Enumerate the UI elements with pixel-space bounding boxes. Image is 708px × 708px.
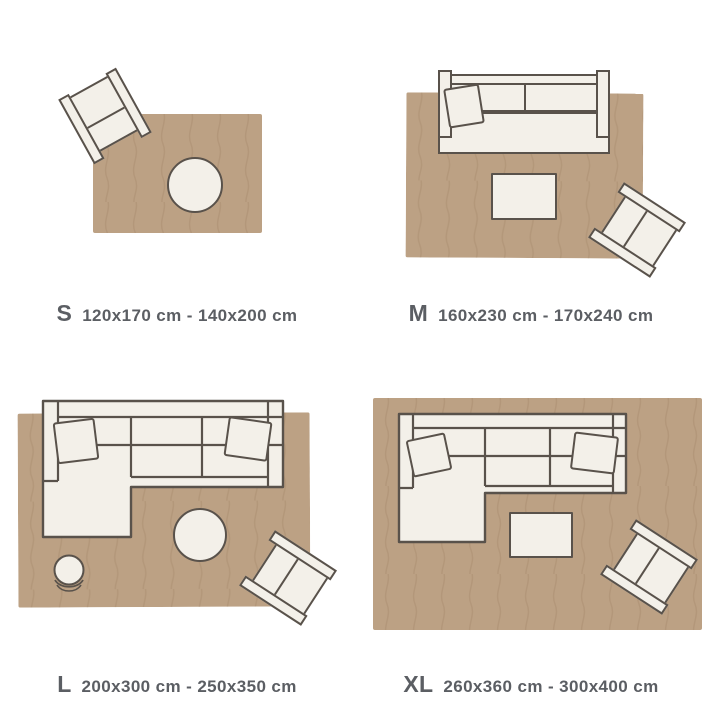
size-label-l: L [57, 671, 71, 698]
size-range-l: 200x300 cm - 250x350 cm [82, 677, 297, 697]
armchair-seat-divider [621, 208, 649, 249]
size-range-s: 120x170 cm - 140x200 cm [82, 306, 297, 326]
armchair-seat-divider [85, 105, 128, 130]
sofa-illustration-m [438, 70, 610, 154]
size-range-m: 160x230 cm - 170x240 cm [438, 306, 653, 326]
size-range-xl: 260x360 cm - 300x400 cm [443, 677, 658, 697]
pillow-illustration [53, 418, 100, 465]
size-label-xl: XL [403, 671, 433, 698]
coffee-table-illustration-m [491, 173, 557, 220]
size-label-s: S [57, 300, 73, 327]
round-table-illustration-s [167, 157, 223, 213]
pillow-illustration [570, 431, 619, 474]
sectional-sofa-illustration-xl [397, 412, 628, 544]
pouf-illustration-l [50, 553, 88, 597]
rug-size-guide: S 120x170 cm - 140x200 cm [0, 0, 708, 708]
size-label-m: M [409, 300, 428, 327]
pillow-illustration [405, 432, 452, 477]
armchair-seat-divider [272, 556, 300, 597]
sofa-arm-right [596, 70, 610, 138]
armchair-seat-divider [633, 545, 661, 586]
pillow-illustration [223, 416, 272, 462]
pillow-illustration [443, 83, 485, 128]
sofa-backrest-divider [524, 85, 526, 110]
